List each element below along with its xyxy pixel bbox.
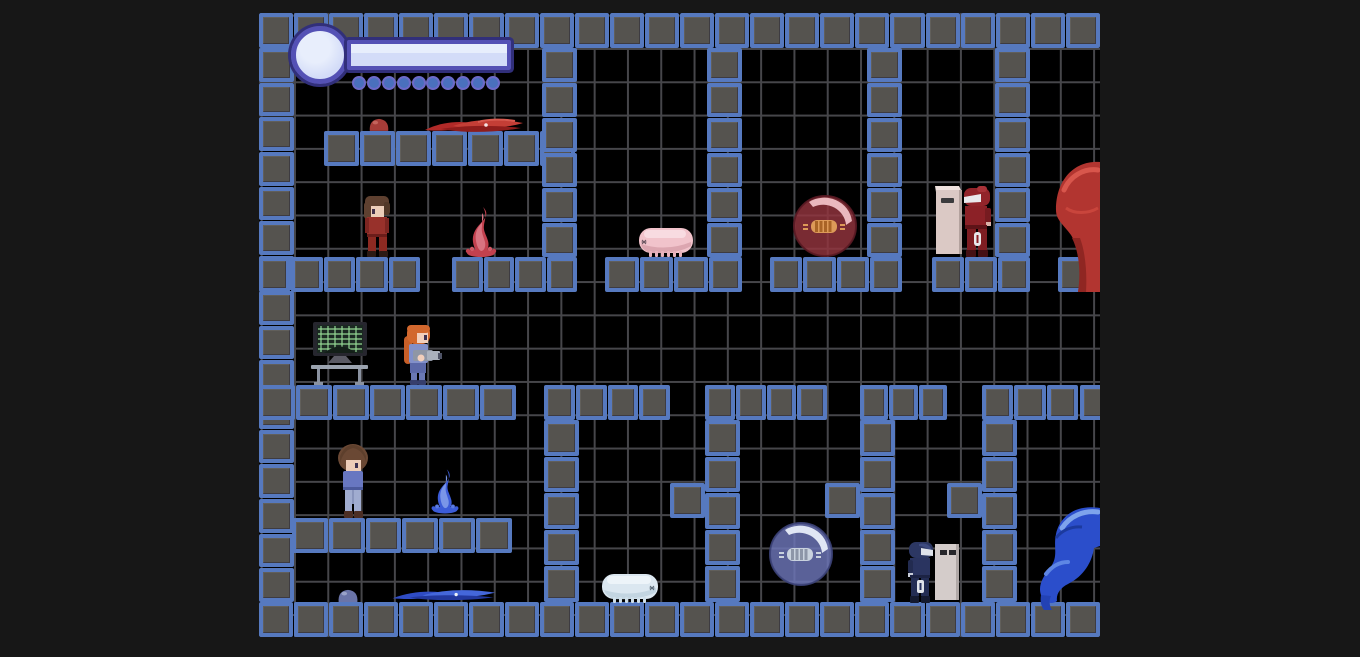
hud-dot [352, 76, 366, 90]
letterbox [0, 0, 1360, 657]
health-orb [291, 26, 349, 84]
hud-dot [456, 76, 470, 90]
hud-dot [382, 76, 396, 90]
hud-dot [426, 76, 440, 90]
hud-dot [412, 76, 426, 90]
hud-dot [471, 76, 485, 90]
hud-dot [441, 76, 455, 90]
game-viewport[interactable] [259, 13, 1100, 637]
hud-dot [486, 76, 500, 90]
health-bar [347, 40, 511, 70]
hud-layer [259, 13, 1100, 637]
hud-dot [397, 76, 411, 90]
hud-dot [367, 76, 381, 90]
hud-dot-row [352, 75, 500, 90]
